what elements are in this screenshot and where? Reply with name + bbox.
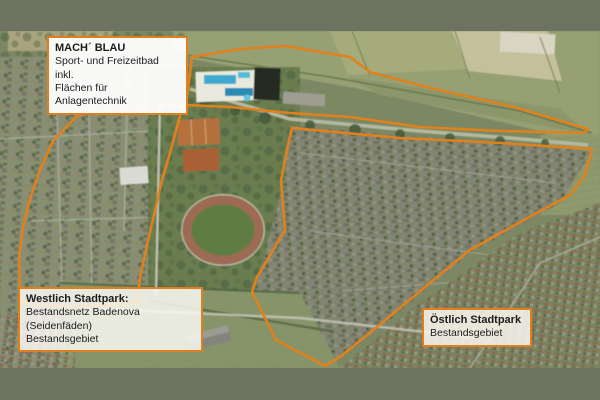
label-oestlich-line1: Bestandsgebiet xyxy=(430,327,524,340)
label-westlich-stadtpark: Westlich Stadtpark: Bestandsnetz Badenov… xyxy=(18,287,203,352)
stadium xyxy=(182,195,264,265)
label-machblau-line2: Flächen für Anlagentechnik xyxy=(55,82,180,109)
slide-page: { "page": { "frame_color": "#6e7261", "o… xyxy=(0,0,600,400)
large-building xyxy=(119,166,148,185)
label-machblau-title: MACH´ BLAU xyxy=(55,41,180,55)
label-oestlich-title: Östlich Stadtpark xyxy=(430,313,524,327)
label-westlich-title: Westlich Stadtpark: xyxy=(26,292,195,306)
label-oestlich-stadtpark: Östlich Stadtpark Bestandsgebiet xyxy=(422,308,532,347)
label-machblau: MACH´ BLAU Sport- und Freizeitbad inkl. … xyxy=(47,36,188,115)
label-westlich-line2: Bestandsgebiet xyxy=(26,333,195,346)
label-machblau-line1: Sport- und Freizeitbad inkl. xyxy=(55,55,180,82)
label-westlich-line1: Bestandsnetz Badenova (Seidenfäden) xyxy=(26,306,195,333)
